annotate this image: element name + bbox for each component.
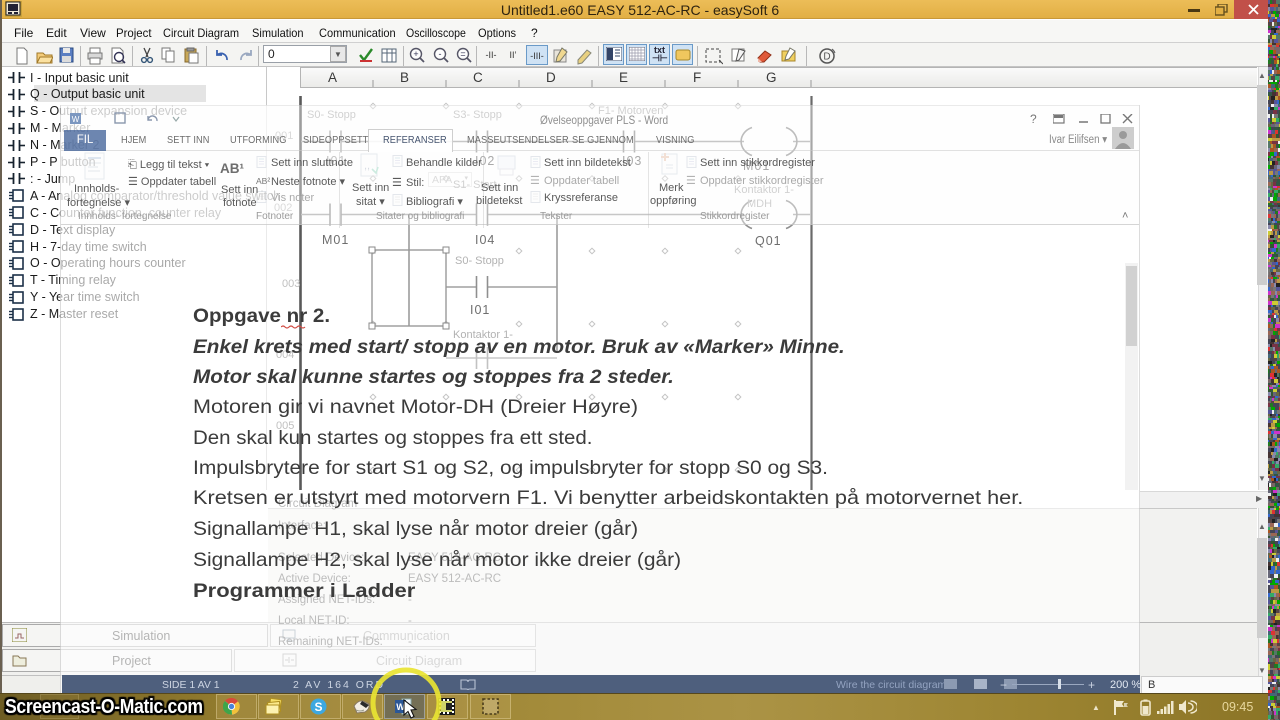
svg-text:+: + [413,49,418,59]
svg-text:D: D [823,52,830,63]
svg-text:W: W [72,115,80,124]
svg-text:-: - [439,49,442,59]
svg-text:=: = [460,49,465,59]
svg-text:S: S [314,700,322,714]
